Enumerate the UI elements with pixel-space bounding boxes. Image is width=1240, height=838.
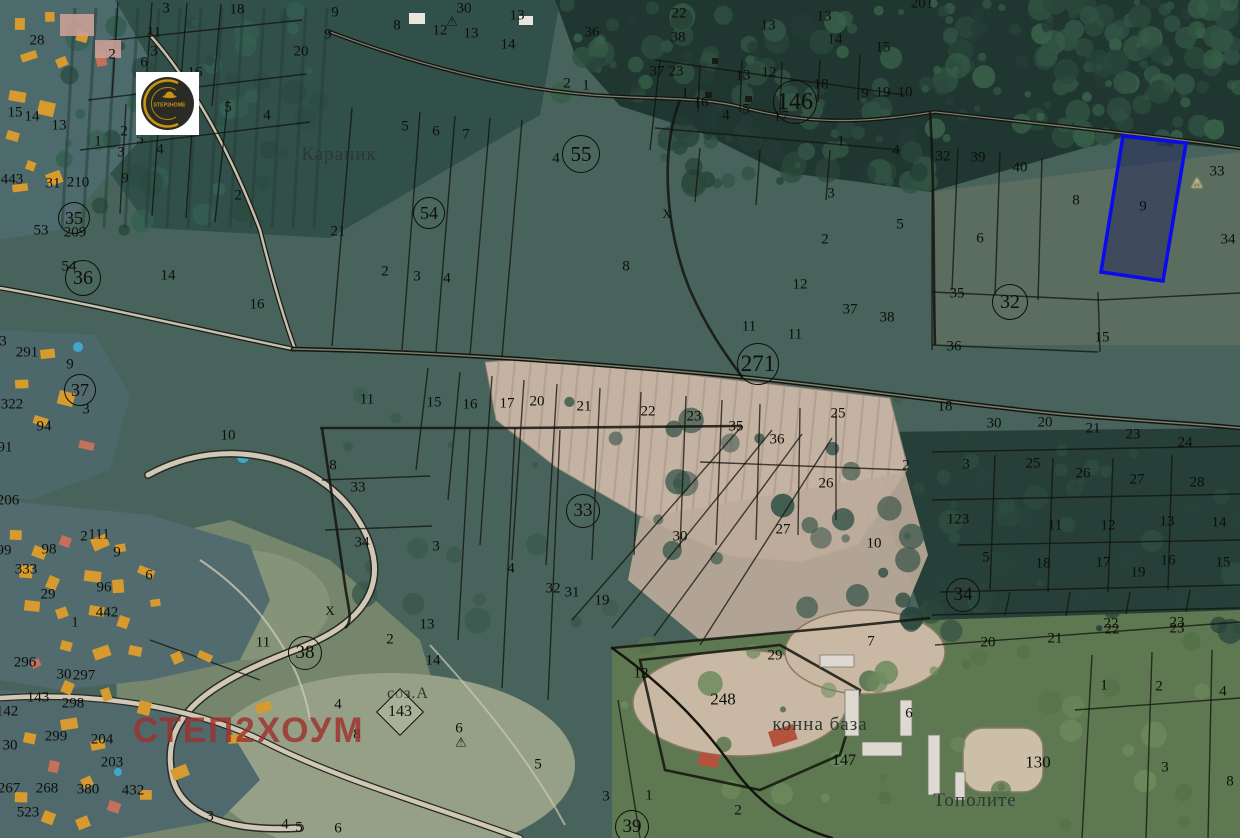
- parcel-number: 30: [987, 417, 1002, 432]
- x-landmark: X: [662, 206, 671, 222]
- parcel-number: 22: [1105, 623, 1120, 638]
- parcel-number: 27: [776, 523, 791, 538]
- parcel-number: 23: [1170, 622, 1185, 637]
- parcel-number: 16: [250, 298, 265, 313]
- parcel-number: 14: [1212, 516, 1227, 531]
- parcel-number: 210: [67, 176, 90, 191]
- parcel-number: 15: [1095, 331, 1110, 346]
- warning-triangle-icon: ⚠: [1191, 177, 1203, 190]
- parcel-number: 2: [381, 265, 389, 280]
- parcel-number: 32: [936, 150, 951, 165]
- parcel-number: 1: [71, 616, 79, 631]
- parcel-number: 12: [762, 66, 777, 81]
- parcel-number: 11: [742, 320, 756, 335]
- parcel-number: 14: [25, 110, 40, 125]
- parcel-number: 18: [938, 400, 953, 415]
- parcel-number: 4: [263, 109, 271, 124]
- parcel-number: 26: [819, 477, 834, 492]
- parcel-number: 36: [585, 26, 600, 41]
- logo-text: STEP2HOME: [154, 103, 187, 109]
- parcel-number: 15: [876, 41, 891, 56]
- parcel-number: 5: [295, 821, 303, 836]
- parcel-number: 38: [671, 31, 686, 46]
- parcel-number: 6: [905, 707, 913, 722]
- parcel-number: 94: [37, 420, 52, 435]
- zone-marker-34: 34: [946, 578, 980, 612]
- parcel-number: 21: [1048, 632, 1063, 647]
- parcel-number: 21: [1086, 422, 1101, 437]
- zone-marker-54: 54: [413, 197, 445, 229]
- parcel-number: 35: [950, 287, 965, 302]
- parcel-number: 3: [0, 335, 7, 350]
- parcel-number: 14: [161, 269, 176, 284]
- parcel-number: 6: [432, 125, 440, 140]
- parcel-number: 5: [534, 758, 542, 773]
- parcel-number: 297: [73, 669, 96, 684]
- parcel-number: 8: [1226, 775, 1234, 790]
- parcel-number: 11: [1048, 519, 1062, 534]
- parcel-number: 130: [1025, 754, 1051, 771]
- parcel-number: 13: [736, 69, 751, 84]
- parcel-number: 9: [66, 358, 74, 373]
- parcel-number: 25: [1026, 457, 1041, 472]
- diamond-number: 143: [388, 703, 412, 721]
- parcel-number: 4: [281, 818, 289, 833]
- parcel-number: 4: [892, 144, 900, 159]
- parcel-number: 31: [565, 586, 580, 601]
- zone-marker-55: 55: [562, 135, 600, 173]
- parcel-number: 1: [582, 79, 590, 94]
- parcel-number: 38: [880, 311, 895, 326]
- parcel-number: 1: [681, 87, 689, 102]
- parcel-number: 22: [641, 405, 656, 420]
- parcel-number: 26: [1076, 467, 1091, 482]
- parcel-number: 2: [386, 633, 394, 648]
- parcel-number: 9: [861, 87, 869, 102]
- parcel-number: 9: [1139, 200, 1147, 215]
- parcel-number: 4: [1219, 685, 1227, 700]
- parcel-number: 2: [902, 459, 910, 474]
- parcel-number: 8: [393, 19, 401, 34]
- parcel-number: 1: [837, 135, 845, 150]
- parcel-number: 13: [420, 618, 435, 633]
- parcel-number: 11: [360, 393, 374, 408]
- parcel-number: 3: [413, 270, 421, 285]
- parcel-number: 98: [42, 543, 57, 558]
- parcel-number: 296: [14, 656, 37, 671]
- parcel-number: 9: [121, 172, 129, 187]
- parcel-number: 1: [94, 135, 102, 150]
- parcel-number: 31: [46, 177, 61, 192]
- parcel-number: 6: [976, 232, 984, 247]
- parcel-number: 16: [463, 398, 478, 413]
- parcel-number: 11: [147, 26, 161, 41]
- parcel-number: 40: [1013, 161, 1028, 176]
- parcel-number: 19: [595, 594, 610, 609]
- parcel-number: 20: [294, 45, 309, 60]
- x-landmark: X: [325, 603, 334, 619]
- parcel-number: 22: [672, 7, 687, 22]
- cadastral-map[interactable]: 3182011361625428151413125349443312102998…: [0, 0, 1240, 838]
- parcel-number: 333: [15, 563, 38, 578]
- parcel-number: 21: [577, 400, 592, 415]
- parcel-number: 13: [761, 19, 776, 34]
- parcel-number: 33: [1210, 165, 1225, 180]
- parcel-number: 34: [355, 536, 370, 551]
- parcel-number: 34: [1221, 233, 1236, 248]
- parcel-number: 33: [351, 481, 366, 496]
- parcel-number: 2: [563, 77, 571, 92]
- parcel-number: 11: [788, 328, 802, 343]
- parcel-number: 2: [1155, 680, 1163, 695]
- parcel-number: 4: [507, 562, 515, 577]
- parcel-number: 23: [1126, 428, 1141, 443]
- parcel-number: 8: [1072, 194, 1080, 209]
- parcel-number: 9: [331, 6, 339, 21]
- parcel-number: 268: [36, 782, 59, 797]
- parcel-number: 18: [814, 78, 829, 93]
- parcel-number: 248: [710, 691, 736, 708]
- parcel-number: 25: [831, 407, 846, 422]
- parcel-number: 12: [1101, 519, 1116, 534]
- parcel-number: 18: [230, 3, 245, 18]
- parcel-number: 19: [876, 86, 891, 101]
- zone-marker-33: 33: [566, 494, 600, 528]
- parcel-number: 17: [1096, 556, 1111, 571]
- parcel-number: 3: [206, 810, 214, 825]
- place-label: Тополите: [933, 790, 1016, 812]
- parcel-number: 432: [122, 784, 145, 799]
- parcel-number: 23: [669, 65, 684, 80]
- parcel-number: 380: [77, 783, 100, 798]
- parcel-number: 201: [911, 0, 934, 12]
- parcel-number: 13: [1160, 515, 1175, 530]
- zone-marker-35: 35: [58, 202, 90, 234]
- parcel-number: 143: [27, 691, 50, 706]
- parcel-number: 36: [947, 340, 962, 355]
- parcel-number: 27: [1130, 473, 1145, 488]
- parcel-number: 14: [828, 33, 843, 48]
- parcel-number: 36: [770, 433, 785, 448]
- parcel-number: 18: [1036, 557, 1051, 572]
- parcel-number: 442: [96, 606, 119, 621]
- parcel-number: 9: [324, 28, 332, 43]
- parcel-number: 14: [501, 38, 516, 53]
- parcel-number: 30: [673, 530, 688, 545]
- parcel-number: 28: [1190, 476, 1205, 491]
- parcel-number: 19: [1131, 566, 1146, 581]
- parcel-number: 12: [634, 667, 649, 682]
- parcel-number: 206: [0, 494, 19, 509]
- parcel-number: 4: [552, 152, 560, 167]
- parcel-number: 39: [971, 151, 986, 166]
- parcel-number: 14: [426, 654, 441, 669]
- parcel-number: 28: [30, 34, 45, 49]
- zone-marker-32: 32: [992, 284, 1028, 320]
- parcel-number: 6: [145, 569, 153, 584]
- parcel-number: 99: [0, 544, 12, 559]
- parcel-number: 21: [331, 225, 346, 240]
- parcel-number: 1: [645, 789, 653, 804]
- parcel-number: 16: [1161, 554, 1176, 569]
- parcel-number: 298: [62, 697, 85, 712]
- parcel-number: 8: [329, 459, 337, 474]
- parcel-number: 2: [80, 530, 88, 545]
- zone-marker-38: 38: [288, 636, 322, 670]
- parcel-number: 13: [464, 27, 479, 42]
- parcel-number: 3: [1161, 761, 1169, 776]
- parcel-number: 3: [962, 458, 970, 473]
- parcel-number: 11: [256, 636, 270, 651]
- parcel-number: 299: [45, 730, 68, 745]
- parcel-number: 6: [334, 822, 342, 837]
- parcel-number: 9: [113, 546, 121, 561]
- parcel-number: 35: [729, 420, 744, 435]
- zone-marker-37: 37: [64, 374, 96, 406]
- parcel-number: 13: [52, 119, 67, 134]
- parcel-number: 3: [827, 187, 835, 202]
- parcel-number: 10: [898, 86, 913, 101]
- parcel-number: 2: [108, 48, 116, 63]
- parcel-number: 291: [16, 346, 39, 361]
- parcel-number: 7: [462, 128, 470, 143]
- parcel-number: 3: [117, 146, 125, 161]
- parcel-number: 15: [427, 396, 442, 411]
- parcel-number: 6: [140, 56, 148, 71]
- parcel-number: 4: [722, 109, 730, 124]
- parcel-number: 2: [734, 804, 742, 819]
- parcel-number: 443: [1, 173, 24, 188]
- parcel-number: 20: [1038, 416, 1053, 431]
- parcel-number: 13: [510, 9, 525, 24]
- parcel-number: 96: [97, 581, 112, 596]
- parcel-number: 5: [401, 120, 409, 135]
- parcel-number: 8: [622, 260, 630, 275]
- parcel-number: 2: [120, 125, 128, 140]
- parcel-number: 20: [530, 395, 545, 410]
- parcel-number: 10: [867, 537, 882, 552]
- parcel-number: 32: [546, 582, 561, 597]
- place-label: конна база: [772, 714, 867, 736]
- parcel-number: 30: [57, 668, 72, 683]
- zone-marker-271: 271: [737, 343, 779, 385]
- parcel-number: 111: [88, 528, 109, 543]
- parcel-number: 4: [156, 143, 164, 158]
- parcel-number: 204: [91, 733, 114, 748]
- parcel-number: 123: [947, 513, 970, 528]
- zone-marker-146: 146: [773, 80, 817, 124]
- warning-triangle-icon: ⚠: [446, 15, 458, 28]
- place-label: Караник: [301, 144, 376, 166]
- parcel-number: 37: [843, 303, 858, 318]
- parcel-number: 13: [817, 10, 832, 25]
- parcel-number: 523: [17, 806, 40, 821]
- parcel-number: 5: [742, 103, 750, 118]
- warning-triangle-icon: ⚠: [455, 736, 467, 749]
- agency-logo: STEP2HOME: [136, 72, 199, 135]
- parcel-number: 3: [602, 790, 610, 805]
- parcel-number: 7: [867, 635, 875, 650]
- parcel-number: 20: [981, 636, 996, 651]
- zone-marker-36: 36: [65, 260, 101, 296]
- parcel-number: 10: [221, 429, 236, 444]
- parcel-number: 12: [793, 278, 808, 293]
- parcel-number: 24: [1178, 436, 1193, 451]
- agency-logo-icon: STEP2HOME: [139, 75, 196, 132]
- parcel-number: 2: [821, 233, 829, 248]
- parcel-number: 3: [150, 45, 158, 60]
- parcel-number: 2: [234, 189, 242, 204]
- parcel-number: 5: [224, 101, 232, 116]
- parcel-number: 267: [0, 782, 20, 797]
- parcel-number: 23: [687, 410, 702, 425]
- parcel-number: 17: [500, 397, 515, 412]
- zone-marker-39: 39: [615, 810, 649, 838]
- parcel-number: 91: [0, 441, 13, 456]
- parcel-number: 147: [832, 753, 856, 769]
- watermark: СТЕП2ХОУМ: [133, 711, 364, 751]
- parcel-number: 142: [0, 705, 18, 720]
- parcel-number: 53: [34, 224, 49, 239]
- parcel-number: 29: [768, 649, 783, 664]
- parcel-number: 1: [1100, 679, 1108, 694]
- parcel-number: 5: [896, 218, 904, 233]
- parcel-number: 3: [432, 540, 440, 555]
- parcel-number: 4: [443, 272, 451, 287]
- parcel-number: 30: [3, 739, 18, 754]
- parcel-number: 15: [1216, 556, 1231, 571]
- parcel-number: 203: [101, 756, 124, 771]
- parcel-number: 5: [982, 551, 990, 566]
- parcel-number: 37: [650, 65, 665, 80]
- parcel-number: 3: [162, 2, 170, 17]
- parcel-number: 322: [1, 398, 24, 413]
- parcel-number: 15: [8, 106, 23, 121]
- parcel-number: 30: [457, 2, 472, 17]
- parcel-number: 29: [41, 588, 56, 603]
- parcel-number: 16: [694, 96, 709, 111]
